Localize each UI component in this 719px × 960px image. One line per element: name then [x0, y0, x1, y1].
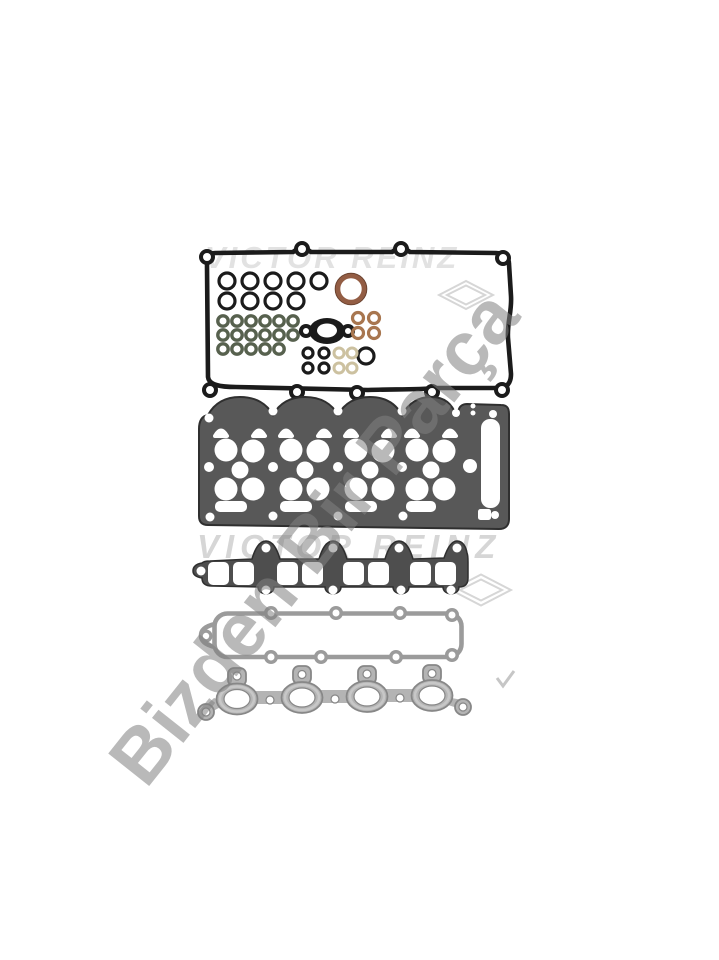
tan-orings: [353, 313, 380, 339]
gasket-set-photo: VICTOR REINZ VICTOR REINZ: [0, 0, 719, 960]
watermark-check-icon: [497, 671, 514, 686]
egr-plate-gasket: [299, 318, 355, 344]
crankshaft-seal-copper: [336, 274, 367, 305]
small-orings-black: [303, 348, 374, 373]
product-photo: VICTOR REINZ VICTOR REINZ: [0, 0, 719, 960]
cream-orings: [334, 348, 357, 373]
valve-stem-orings-black: [219, 273, 327, 309]
watermark-brand-top: VICTOR REINZ: [205, 240, 459, 275]
green-orings: [218, 316, 298, 354]
